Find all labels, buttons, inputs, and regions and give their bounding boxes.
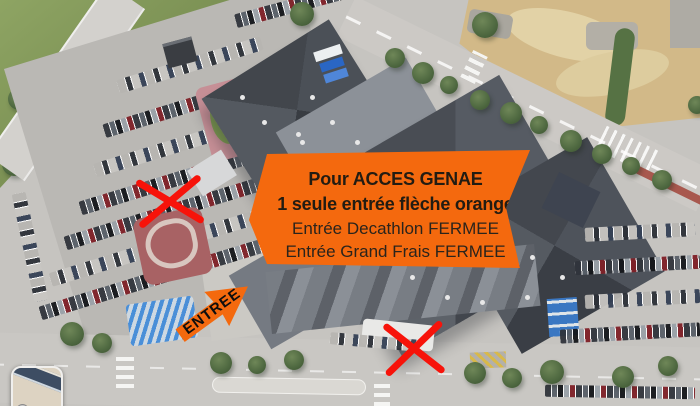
banner-line: 1 seule entrée flèche orange <box>277 192 514 217</box>
tree <box>60 322 84 346</box>
tree <box>658 356 678 376</box>
tree <box>464 362 486 384</box>
banner-line: Entrée Grand Frais FERMEE <box>285 240 505 263</box>
parking-cars-row <box>560 322 700 343</box>
tree <box>248 356 266 374</box>
tree <box>688 96 700 114</box>
satellite-map-view[interactable]: Pour ACCES GENAE 1 seule entrée flèche o… <box>0 0 700 406</box>
tree <box>502 368 522 388</box>
crosswalk <box>374 384 390 406</box>
tree <box>622 157 640 175</box>
tree <box>290 2 314 26</box>
banner-line: Entrée Decathlon FERMEE <box>292 217 499 240</box>
tree <box>412 62 434 84</box>
tree <box>652 170 672 190</box>
tree <box>560 130 582 152</box>
roof-vents <box>0 0 5 5</box>
banner-line: Pour ACCES GENAE <box>308 167 482 192</box>
tree <box>92 333 112 353</box>
map-inset-thumbnail[interactable] <box>11 366 63 406</box>
tree <box>440 76 458 94</box>
tree <box>470 90 490 110</box>
tree <box>284 350 304 370</box>
red-x-icon <box>380 320 448 378</box>
access-info-banner: Pour ACCES GENAE 1 seule entrée flèche o… <box>249 150 530 268</box>
tree <box>472 12 498 38</box>
traffic-island <box>212 377 366 396</box>
red-x-icon <box>134 176 206 228</box>
tree <box>385 48 405 68</box>
tree <box>592 144 612 164</box>
tree <box>500 102 522 124</box>
map-inset-road-icon <box>11 366 63 402</box>
parking-cars-row <box>12 192 49 303</box>
tree <box>612 366 634 388</box>
tree <box>530 116 548 134</box>
tree <box>210 352 232 374</box>
concrete-pad <box>670 0 700 48</box>
tree <box>540 360 564 384</box>
crosswalk <box>116 352 134 388</box>
